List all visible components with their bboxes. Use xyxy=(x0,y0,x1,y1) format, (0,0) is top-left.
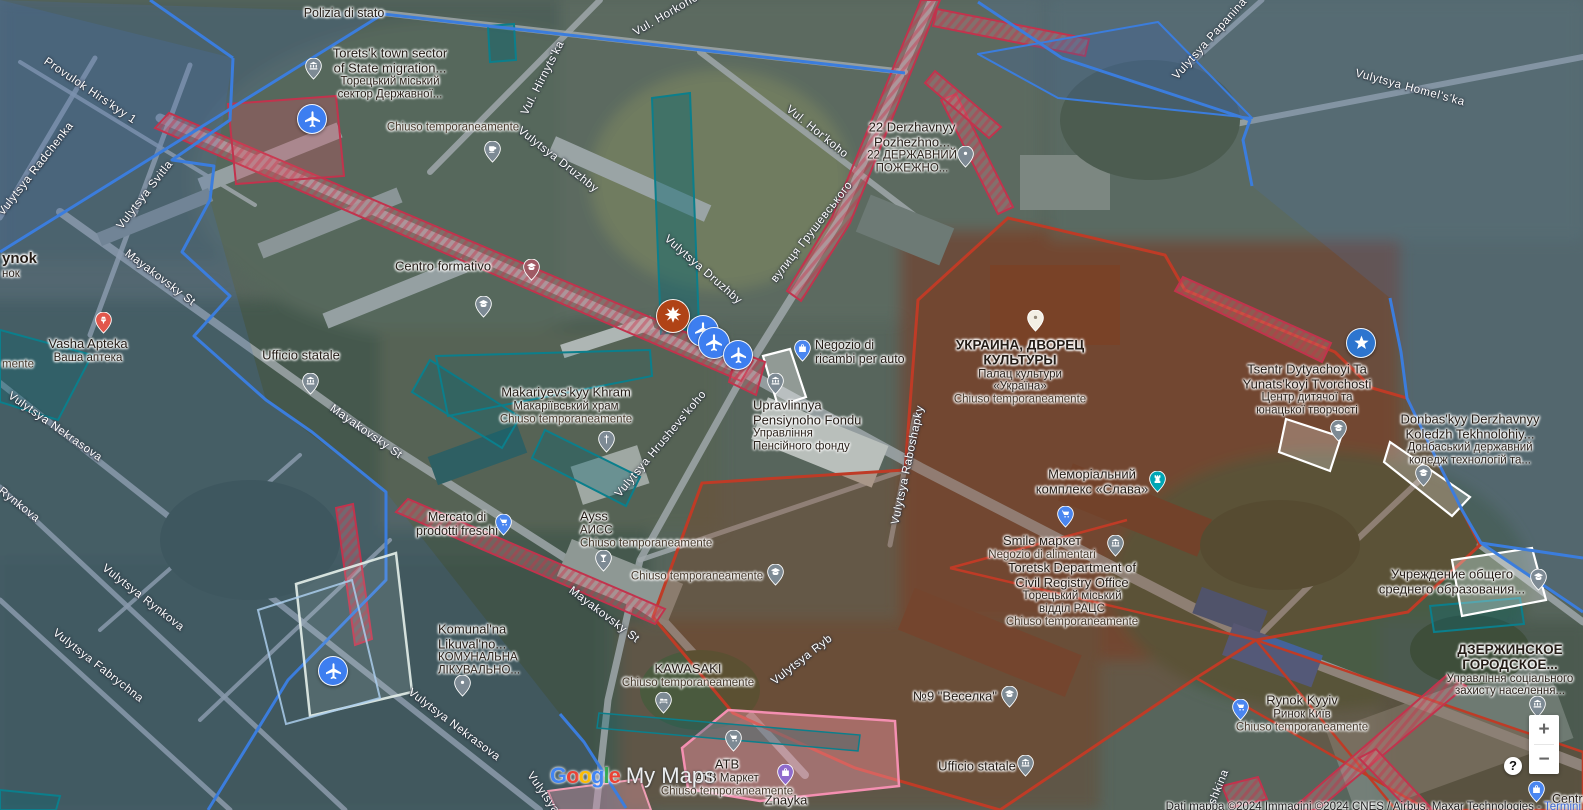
poi-label-line: Makariyevs'kyy Khram xyxy=(500,386,632,401)
poi-label-line: Центр дитячої та xyxy=(1243,392,1372,405)
poi-label: Меморіальнийкомплекс «Слава» xyxy=(1036,467,1148,496)
airplane-icon xyxy=(324,662,343,681)
poi-label-line: 22 Derzhavnyy xyxy=(867,120,957,135)
poi-label-line: KAWASAKI xyxy=(622,662,754,677)
cart-icon xyxy=(723,730,744,760)
dot-pin-marker[interactable] xyxy=(1025,310,1046,345)
bank-icon xyxy=(1015,755,1036,785)
graduation-icon xyxy=(765,564,786,594)
google-logo-letter: G xyxy=(550,763,566,788)
bank-pin-marker[interactable] xyxy=(303,58,324,93)
poi-label-line: 22 ДЕРЖАВНИЙ xyxy=(867,150,957,163)
star-marker[interactable] xyxy=(1346,328,1376,358)
attribution-separator: - xyxy=(1534,801,1544,810)
poi-label-line: ЛІКУВАЛЬНО... xyxy=(438,665,520,678)
dot-icon xyxy=(955,146,976,176)
poi-label: УКРАИНА, ДВОРЕЦКУЛЬТУРЫПалац культури«Ук… xyxy=(954,337,1086,406)
poi-label-line: Tsentr Dytyachoyi Ta xyxy=(1243,362,1372,377)
airplane-marker[interactable] xyxy=(723,340,753,370)
poi-label: Negozio diricambi per auto xyxy=(815,338,905,366)
poi-label-line: Centro formativo xyxy=(395,260,491,275)
burst-marker[interactable] xyxy=(656,299,690,333)
poi-label-line: Учреждение общего xyxy=(1379,567,1525,582)
poi-label-line: Pozhezhno... xyxy=(867,135,957,150)
dot-icon xyxy=(452,675,473,705)
poi-label-line: prodotti freschi xyxy=(416,524,498,538)
my-maps-canvas[interactable]: Vul. Hirnyts'kaVulytsya DruzhbyVulytsya … xyxy=(0,0,1583,810)
my-maps-label: My Maps xyxy=(626,763,715,788)
poi-label: Учреждение общегосреднего образования... xyxy=(1379,567,1525,596)
poi-label-line: «Україна» xyxy=(954,381,1086,394)
poi-label: Makariyevs'kyy KhramМакаріївський храмCh… xyxy=(500,386,632,427)
cart-icon xyxy=(493,514,514,544)
zoom-control: + − xyxy=(1529,715,1559,774)
graduation-icon xyxy=(999,686,1020,716)
cocktail-icon xyxy=(593,550,614,580)
airplane-icon xyxy=(729,346,748,365)
poi-label-line: Торецький міський xyxy=(333,76,447,89)
bank-pin-marker[interactable] xyxy=(1015,755,1036,790)
poi-label: KAWASAKIChiuso temporaneamente xyxy=(622,662,754,690)
cart-pin-marker[interactable] xyxy=(1230,699,1251,734)
poi-label: mente xyxy=(2,359,34,372)
rook-pin-marker[interactable] xyxy=(1147,471,1168,506)
poi-label: №9 "Веселка" xyxy=(913,690,997,705)
google-logo: Google xyxy=(550,770,620,787)
bank-pin-marker[interactable] xyxy=(1105,535,1126,570)
poi-label-line: Chiuso temporaneamente xyxy=(1236,721,1368,734)
poi-label-line: Chiuso temporaneamente xyxy=(622,677,754,690)
graduation-pin-marker[interactable] xyxy=(473,296,494,331)
poi-label: Mercato diprodotti freschi xyxy=(416,510,498,538)
dot-pin-marker[interactable] xyxy=(452,675,473,710)
dot-icon xyxy=(1025,310,1046,340)
poi-label-line: №9 "Веселка" xyxy=(913,690,997,705)
poi-label-line: юнацької творчості xyxy=(1243,405,1372,418)
poi-label: Centro formativo xyxy=(395,260,491,275)
poi-label-line: УКРАИНА, ДВОРЕЦ xyxy=(954,337,1086,352)
poi-label-line: Chiuso temporaneamente xyxy=(631,571,763,584)
poi-label: Smile маркетNegozio di alimentari xyxy=(988,534,1095,562)
poi-label: Ufficio statale xyxy=(262,349,340,364)
poi-label-line: Koledzh Tekhnolohiy... xyxy=(1400,427,1539,442)
poi-label-line: Torets'k town sector xyxy=(333,46,447,61)
graduation-icon xyxy=(1528,569,1549,599)
bed-pin-marker[interactable] xyxy=(653,692,674,727)
poi-label-line: відділ РАЦС xyxy=(1006,603,1138,616)
graduation-pin-marker[interactable] xyxy=(1528,569,1549,604)
poi-label-line: Ufficio statale xyxy=(938,760,1016,775)
graduation-pin-marker[interactable] xyxy=(1328,420,1349,455)
pharmacy-icon xyxy=(93,312,114,342)
poi-label-line: ПОЖЕЖНО... xyxy=(867,163,957,176)
bed-icon xyxy=(653,692,674,722)
poi-label-line: Ayss xyxy=(580,510,712,525)
poi-label-line: сектор Державної... xyxy=(333,89,447,102)
zoom-out-button[interactable]: − xyxy=(1529,745,1559,774)
poi-label-line: КУЛЬТУРЫ xyxy=(954,353,1086,368)
poi-label-line: захисту населення... xyxy=(1447,685,1574,698)
poi-label-line: Vasha Apteka xyxy=(48,337,127,352)
cart-icon xyxy=(1055,506,1076,536)
attribution-text: Dati mappa ©2024 Immagini ©2024 CNES / A… xyxy=(1166,801,1534,810)
google-logo-letter: g xyxy=(591,763,603,788)
map-attribution: Dati mappa ©2024 Immagini ©2024 CNES / A… xyxy=(1166,801,1581,810)
bag-icon xyxy=(792,340,813,370)
help-button[interactable]: ? xyxy=(1504,757,1522,775)
poi-label-line: Палац культури xyxy=(954,368,1086,381)
google-my-maps-watermark[interactable]: GoogleMy Maps xyxy=(550,763,715,789)
poi-label-line: Chiuso temporaneamente xyxy=(1006,616,1138,629)
poi-label: Komunal'naLikuval'no...КОМУНАЛЬНАЛІКУВАЛ… xyxy=(438,622,520,677)
poi-label-line: комплекс «Слава» xyxy=(1036,482,1148,497)
poi-label-line: Пенсійного фонду xyxy=(753,441,861,454)
dot-pin-marker[interactable] xyxy=(955,146,976,181)
church-icon xyxy=(596,431,617,461)
poi-label: Polizia di stato xyxy=(304,6,385,20)
poi-label: Torets'k town sectorof State migration..… xyxy=(333,46,447,101)
poi-label-line: Negozio di xyxy=(815,338,905,352)
poi-label: AyssАИССChiuso temporaneamente xyxy=(580,510,712,551)
bag-pin-marker[interactable] xyxy=(792,340,813,375)
poi-label-line: ДЗЕРЖИНСКОЕ xyxy=(1447,642,1574,657)
cart-icon xyxy=(1230,699,1251,729)
cart-pin-marker[interactable] xyxy=(1055,506,1076,541)
coffee-icon xyxy=(482,141,503,171)
rook-icon xyxy=(1147,471,1168,501)
poi-label: ynokнок xyxy=(2,251,37,281)
airplane-marker[interactable] xyxy=(318,656,348,686)
graduation-pin-marker[interactable] xyxy=(521,259,542,294)
poi-label-line: Donbas'kyy Derzhavnyy xyxy=(1400,412,1539,427)
cocktail-pin-marker[interactable] xyxy=(593,550,614,585)
poi-label-line: Chiuso temporaneamente xyxy=(387,122,519,135)
poi-label: Rynok KyyivРинок КиївChiuso temporaneame… xyxy=(1236,694,1368,735)
poi-label: Donbas'kyy DerzhavnyyKoledzh Tekhnolohiy… xyxy=(1400,412,1539,467)
bag-pin-marker[interactable] xyxy=(775,764,796,799)
airplane-icon xyxy=(704,333,724,353)
poi-label-line: Rynok Kyyiv xyxy=(1236,694,1368,709)
poi-label: Ufficio statale xyxy=(938,760,1016,775)
poi-label-line: Chiuso temporaneamente xyxy=(954,394,1086,407)
airplane-marker[interactable] xyxy=(297,104,327,134)
poi-label-line: Polizia di stato xyxy=(304,6,385,20)
zoom-in-button[interactable]: + xyxy=(1529,715,1559,744)
star-icon xyxy=(1352,334,1371,353)
burst-icon xyxy=(662,305,684,327)
poi-label-line: Управління соціального xyxy=(1447,672,1574,685)
poi-label-line: Управління xyxy=(753,428,861,441)
poi-label-line: среднего образования... xyxy=(1379,582,1525,597)
poi-label-line: Mercato di xyxy=(416,510,498,524)
graduation-pin-marker[interactable] xyxy=(999,686,1020,721)
terms-link[interactable]: Termini xyxy=(1544,801,1581,810)
poi-label: Tsentr Dytyachoyi TaYunats'koyi Tvorchos… xyxy=(1243,362,1372,417)
poi-label-line: КОМУНАЛЬНА xyxy=(438,652,520,665)
poi-label-line: of State migration... xyxy=(333,61,447,76)
poi-label: ДЗЕРЖИНСКОЕГОРОДСКОЕ...Управління соціал… xyxy=(1447,642,1574,698)
poi-label-line: Торецький міський xyxy=(1006,590,1138,603)
google-logo-letter: o xyxy=(579,763,591,788)
bag-icon xyxy=(775,764,796,794)
poi-label-line: ricambi per auto xyxy=(815,352,905,366)
poi-label-line: Ринок Київ xyxy=(1236,708,1368,721)
poi-label-line: Komunal'na xyxy=(438,622,520,637)
graduation-pin-marker[interactable] xyxy=(765,564,786,599)
bank-pin-marker[interactable] xyxy=(300,373,321,408)
bank-icon xyxy=(1105,535,1126,565)
poi-label: Chiuso temporaneamente xyxy=(631,571,763,584)
poi-label-line: mente xyxy=(2,359,34,372)
poi-label-line: Ufficio statale xyxy=(262,349,340,364)
poi-label-line: Pensiynoho Fondu xyxy=(753,413,861,428)
poi-label-line: Smile маркет xyxy=(988,534,1095,549)
graduation-icon xyxy=(1328,420,1349,450)
poi-label-line: Донбаський державний xyxy=(1400,442,1539,455)
google-logo-letter: o xyxy=(566,763,578,788)
bank-icon xyxy=(300,373,321,403)
poi-label: 22 DerzhavnyyPozhezhno...22 ДЕРЖАВНИЙПОЖ… xyxy=(867,120,957,175)
poi-label: Toretsk Department ofCivil Registry Offi… xyxy=(1006,561,1138,629)
bank-icon xyxy=(303,58,324,88)
poi-label-line: Ваша аптека xyxy=(48,352,127,365)
graduation-icon xyxy=(521,259,542,289)
poi-label-line: Civil Registry Office xyxy=(1006,576,1138,591)
poi-label-line: ГОРОДСКОЕ... xyxy=(1447,657,1574,672)
google-logo-letter: e xyxy=(609,763,620,788)
poi-label-line: Макаріївський храм xyxy=(500,400,632,413)
poi-label-line: нок xyxy=(2,268,37,281)
pharmacy-pin-marker[interactable] xyxy=(93,312,114,347)
poi-label-line: Меморіальний xyxy=(1036,467,1148,482)
church-pin-marker[interactable] xyxy=(596,431,617,466)
cart-pin-marker[interactable] xyxy=(723,730,744,765)
coffee-pin-marker[interactable] xyxy=(482,141,503,176)
graduation-icon xyxy=(1413,465,1434,495)
graduation-icon xyxy=(473,296,494,326)
bank-icon xyxy=(765,373,786,403)
airplane-icon xyxy=(303,110,322,129)
poi-label-line: АИСС xyxy=(580,524,712,537)
poi-label: Chiuso temporaneamente xyxy=(387,122,519,135)
poi-label-line: Likuval'no... xyxy=(438,637,520,652)
bank-pin-marker[interactable] xyxy=(765,373,786,408)
poi-label-line: Chiuso temporaneamente xyxy=(500,413,632,426)
poi-label-line: Yunats'koyi Tvorchosti xyxy=(1243,377,1372,392)
poi-label-line: Chiuso temporaneamente xyxy=(580,537,712,550)
cart-pin-marker[interactable] xyxy=(493,514,514,549)
poi-label: Vasha AptekaВаша аптека xyxy=(48,337,127,365)
graduation-pin-marker[interactable] xyxy=(1413,465,1434,500)
poi-label-line: ynok xyxy=(2,251,37,268)
